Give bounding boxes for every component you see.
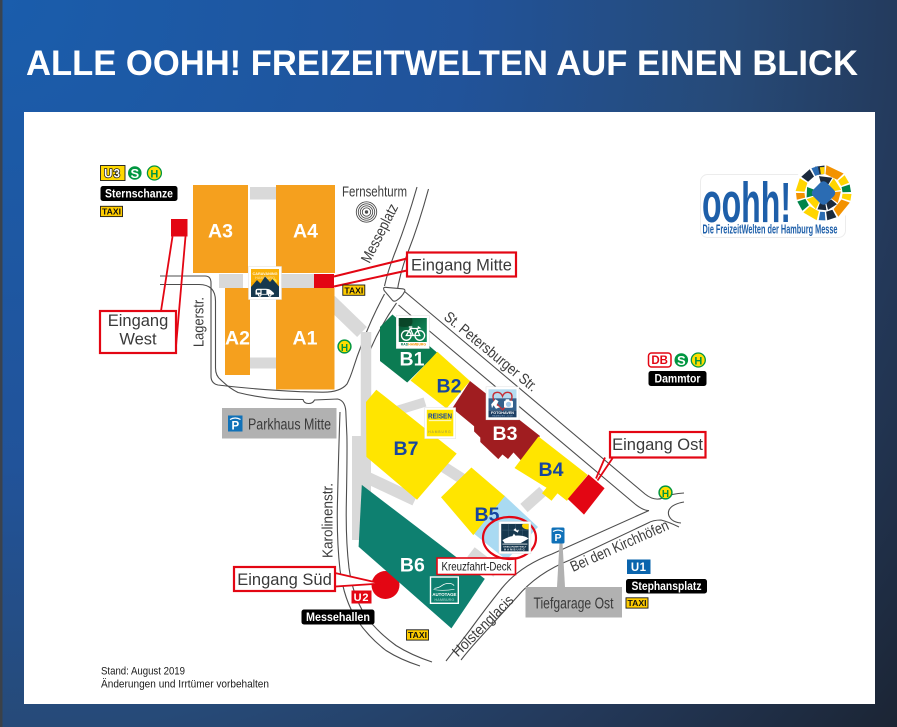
svg-text:A2: A2: [225, 328, 250, 350]
svg-text:West: West: [119, 331, 157, 349]
svg-text:Tiefgarage Ost: Tiefgarage Ost: [534, 596, 615, 613]
svg-text:HAMBURG 2019: HAMBURG 2019: [492, 415, 513, 418]
svg-text:Änderungen und Irrtümer vorbeh: Änderungen und Irrtümer vorbehalten: [101, 679, 269, 691]
svg-text:Fernsehturm: Fernsehturm: [342, 184, 407, 201]
svg-text:U1: U1: [631, 562, 647, 574]
svg-text:Lagerstr.: Lagerstr.: [191, 297, 208, 347]
svg-text:B5: B5: [475, 504, 500, 526]
svg-text:U2: U2: [354, 592, 370, 604]
svg-text:Eingang Süd: Eingang Süd: [237, 571, 332, 589]
svg-text:B2: B2: [437, 376, 462, 398]
svg-text:FOTOHAVEN: FOTOHAVEN: [491, 411, 514, 415]
svg-text:Parkhaus Mitte: Parkhaus Mitte: [248, 417, 331, 434]
svg-text:P: P: [231, 421, 239, 433]
svg-text:S: S: [677, 353, 686, 368]
svg-text:B1: B1: [400, 349, 425, 371]
svg-text:HAMBURG: HAMBURG: [428, 430, 451, 434]
svg-text:HAMBURG: HAMBURG: [434, 597, 454, 602]
svg-text:Stephansplatz: Stephansplatz: [632, 581, 702, 593]
svg-text:B3: B3: [493, 423, 518, 445]
svg-text:HAMBURG: HAMBURG: [408, 343, 426, 347]
svg-text:DB: DB: [651, 355, 668, 367]
svg-text:Stand: August 2019: Stand: August 2019: [101, 666, 185, 678]
svg-text:Kreuzfahrt-Deck: Kreuzfahrt-Deck: [442, 560, 513, 574]
svg-text:REISEN: REISEN: [428, 411, 452, 420]
svg-text:H: H: [341, 343, 348, 354]
svg-text:TAXI: TAXI: [408, 630, 427, 640]
svg-text:U3: U3: [104, 169, 121, 181]
svg-text:H: H: [662, 489, 669, 500]
svg-text:Die FreizeitWelten der Hamburg: Die FreizeitWelten der Hamburg Messe: [703, 223, 838, 237]
svg-text:Karolinenstr.: Karolinenstr.: [320, 483, 337, 558]
svg-text:TAXI: TAXI: [344, 285, 363, 295]
svg-text:Eingang: Eingang: [108, 312, 169, 330]
svg-text:Sternschanze: Sternschanze: [105, 187, 173, 201]
svg-text:A3: A3: [208, 221, 233, 243]
svg-text:A1: A1: [293, 328, 318, 350]
svg-text:S: S: [130, 166, 139, 181]
svg-text:B4: B4: [539, 459, 564, 481]
svg-text:H: H: [150, 169, 158, 181]
svg-text:H: H: [694, 356, 702, 368]
svg-text:Eingang Mitte: Eingang Mitte: [411, 257, 512, 275]
svg-text:TAXI: TAXI: [102, 207, 121, 217]
svg-text:A4: A4: [293, 221, 318, 243]
svg-text:Dammtor: Dammtor: [655, 372, 701, 386]
svg-text:B7: B7: [394, 438, 419, 460]
svg-text:TAXI: TAXI: [628, 598, 647, 608]
svg-text:HAMBURG: HAMBURG: [504, 548, 526, 552]
svg-text:P: P: [554, 532, 561, 544]
svg-text:ALLE OOHH! FREIZEITWELTEN AUF: ALLE OOHH! FREIZEITWELTEN AUF EINEN BLIC…: [26, 44, 858, 83]
svg-text:B6: B6: [400, 555, 425, 577]
svg-text:Messehallen: Messehallen: [306, 610, 370, 624]
svg-text:Eingang Ost: Eingang Ost: [612, 436, 703, 454]
